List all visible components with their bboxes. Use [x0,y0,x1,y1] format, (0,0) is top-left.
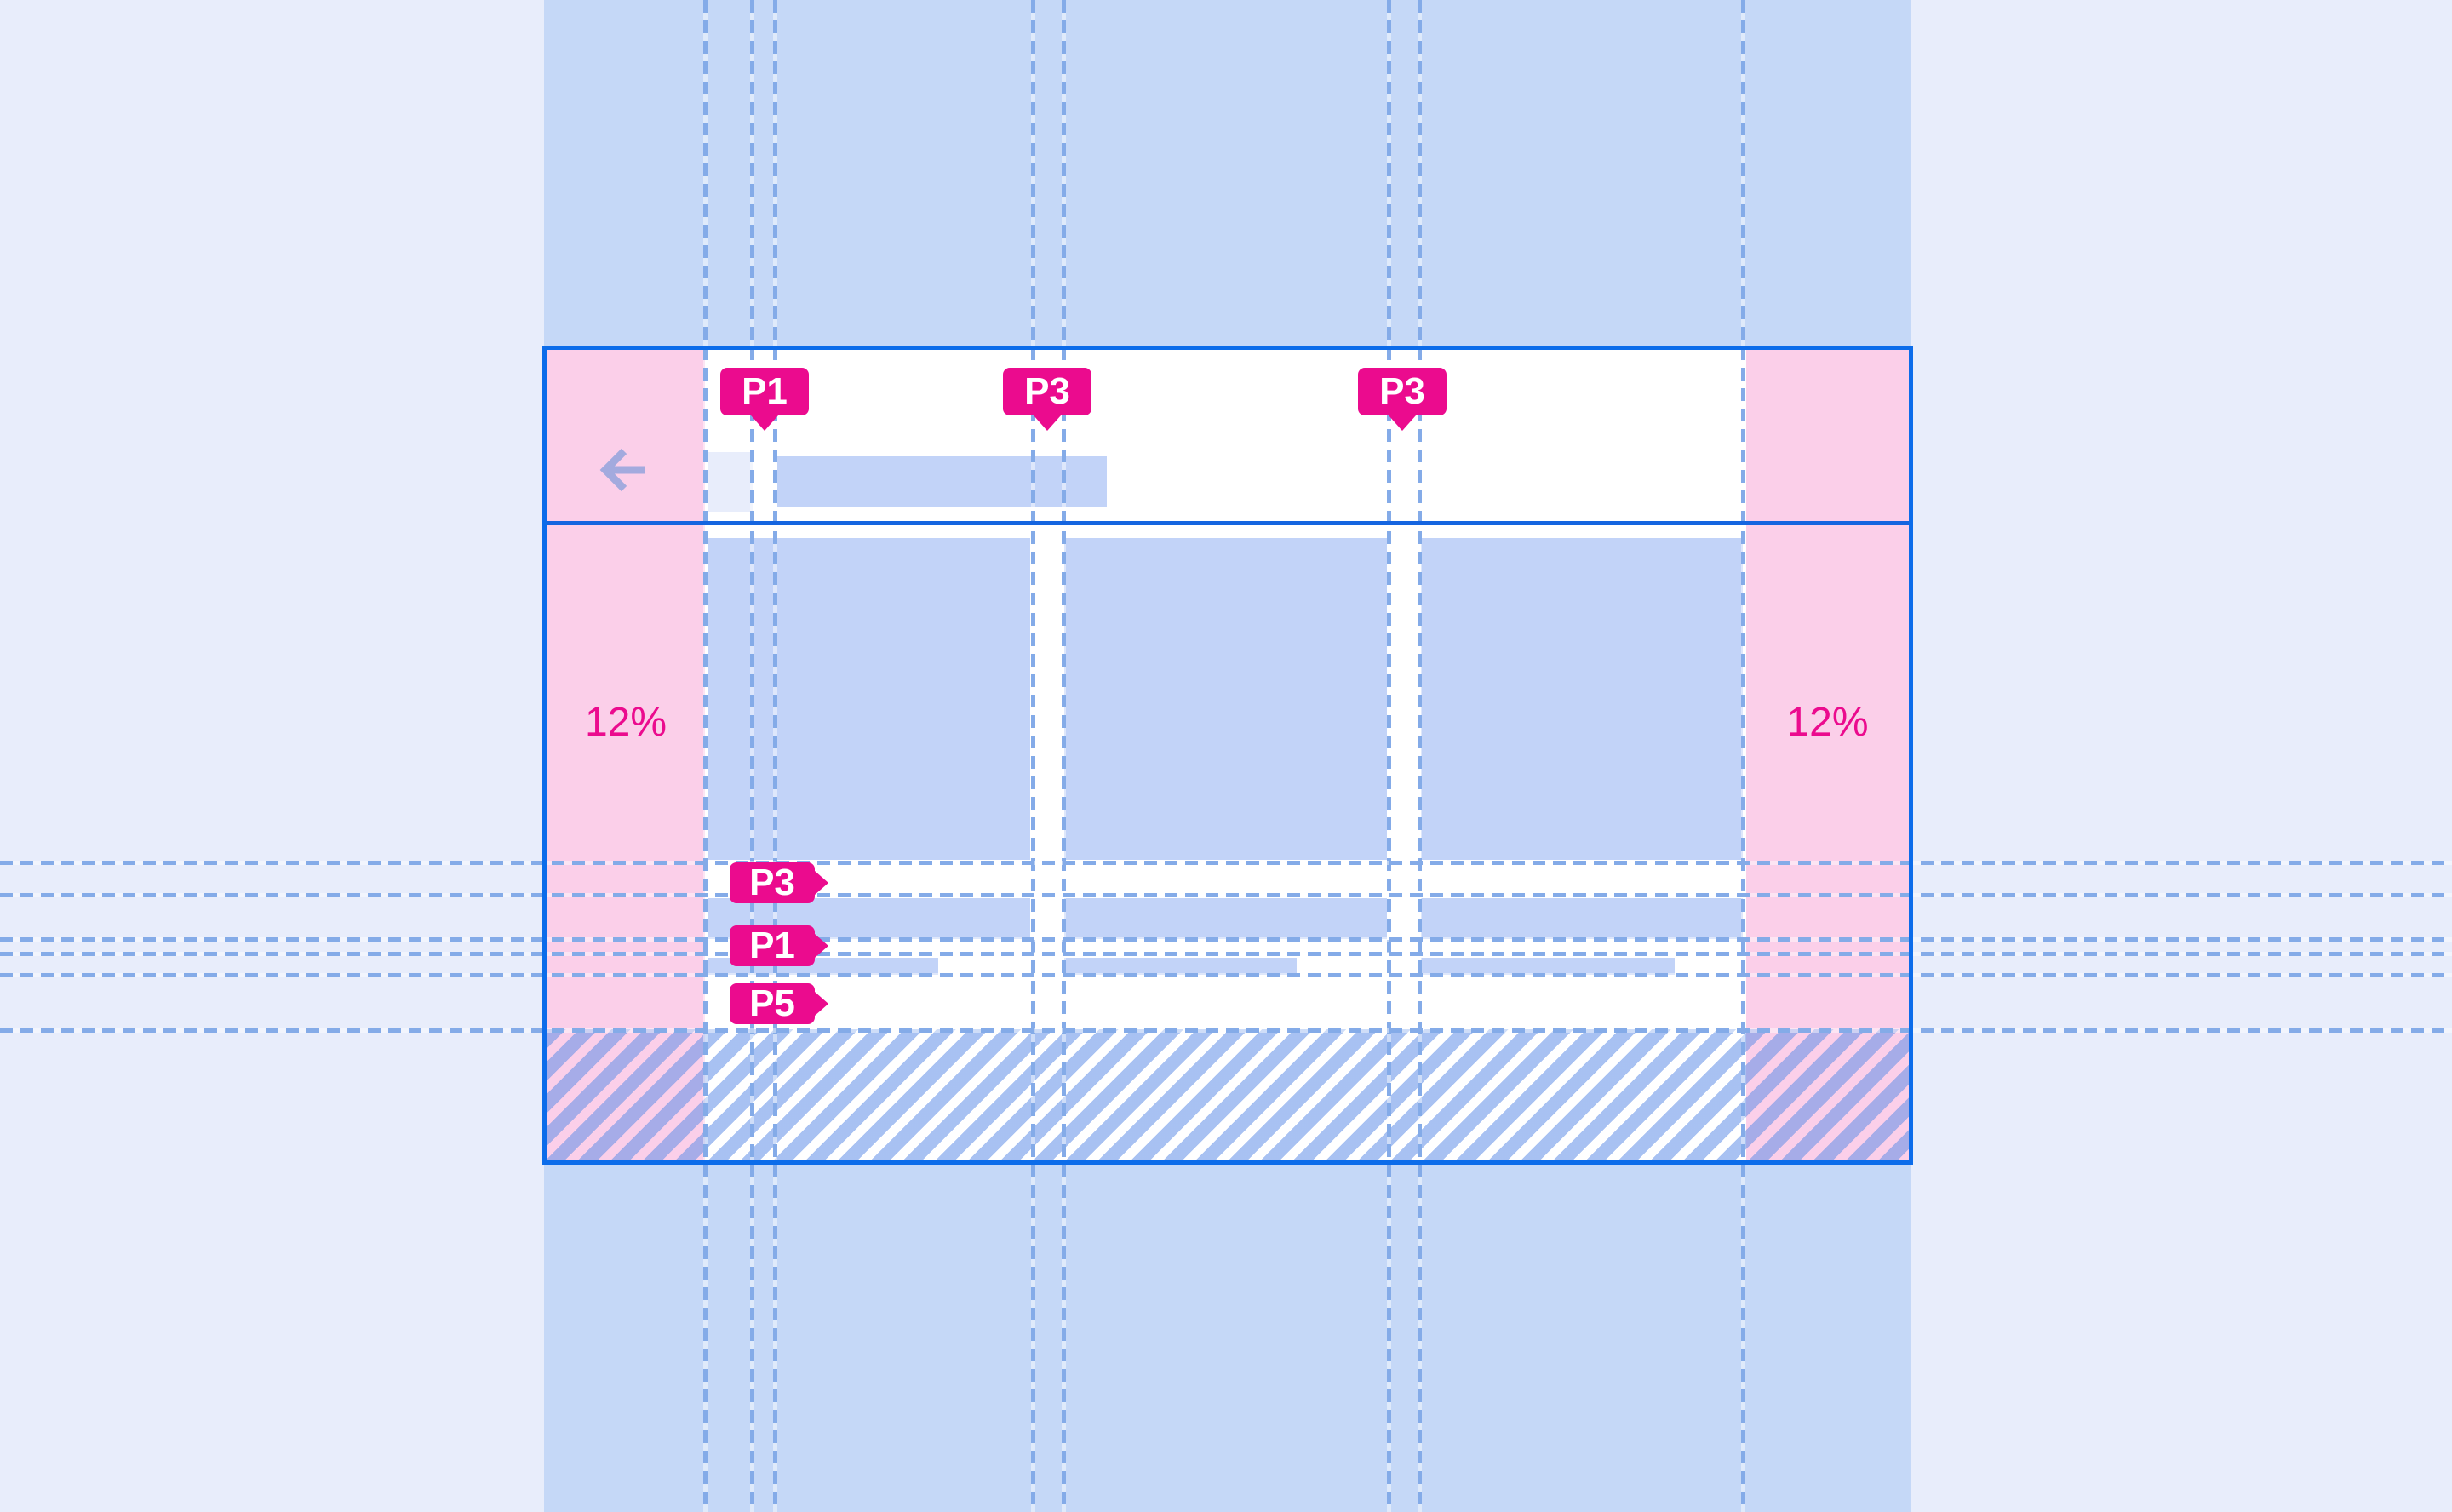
text-line-placeholder-2a [1064,898,1387,939]
horizontal-guide-row1-top [0,893,2452,897]
padding-tag-top-p3-second: P3 [1358,368,1447,415]
padding-tag-side-p5: P5 [730,983,815,1024]
design-spec-canvas: P1 P3 P3 P3 P1 P5 12% 12% [0,0,2452,1512]
content-card-placeholder-1 [708,538,1030,860]
vertical-guide-content-right [1741,0,1745,1512]
horizontal-guide-row2-bottom [0,973,2452,977]
horizontal-guide-row1-bottom [0,937,2452,942]
padding-tag-label: P3 [1024,373,1070,410]
content-card-placeholder-2 [1064,538,1387,860]
text-line-placeholder-2b [1064,958,1297,975]
avatar-placeholder [708,452,753,512]
vertical-guide-gutter2-b [1418,0,1422,1512]
margin-percent-text: 12% [1786,699,1868,746]
padding-tag-side-p1: P1 [730,925,815,966]
padding-tag-label: P3 [749,864,795,902]
vertical-guide-gutter1-a [1031,0,1035,1512]
vertical-guide-gutter2-a [1387,0,1391,1512]
padding-tag-label: P1 [749,927,795,965]
arrow-left-icon [595,443,650,497]
horizontal-guide-boxes-bottom [0,861,2452,865]
horizontal-guide-hatch-top [0,1028,2452,1033]
padding-tag-top-p3-first: P3 [1003,368,1091,415]
title-placeholder [777,456,1107,507]
margin-percent-text: 12% [585,699,667,746]
padding-tag-label: P3 [1379,373,1425,410]
padding-tag-side-p3: P3 [730,862,815,903]
text-line-placeholder-3a [1421,898,1743,939]
horizontal-guide-row2-top [0,952,2452,956]
margin-percent-label-left: 12% [547,681,705,763]
vertical-guide-p1-b [773,0,777,1512]
padding-tag-top-p1: P1 [720,368,809,415]
padding-tag-label: P5 [749,985,795,1022]
content-card-placeholder-3 [1421,538,1743,860]
vertical-guide-p1-a [750,0,754,1512]
text-line-placeholder-3b [1421,958,1675,975]
margin-percent-label-right: 12% [1746,681,1909,763]
padding-tag-label: P1 [742,373,788,410]
vertical-guide-gutter1-b [1062,0,1066,1512]
back-button[interactable] [592,439,653,501]
header-divider-line [547,521,1909,525]
